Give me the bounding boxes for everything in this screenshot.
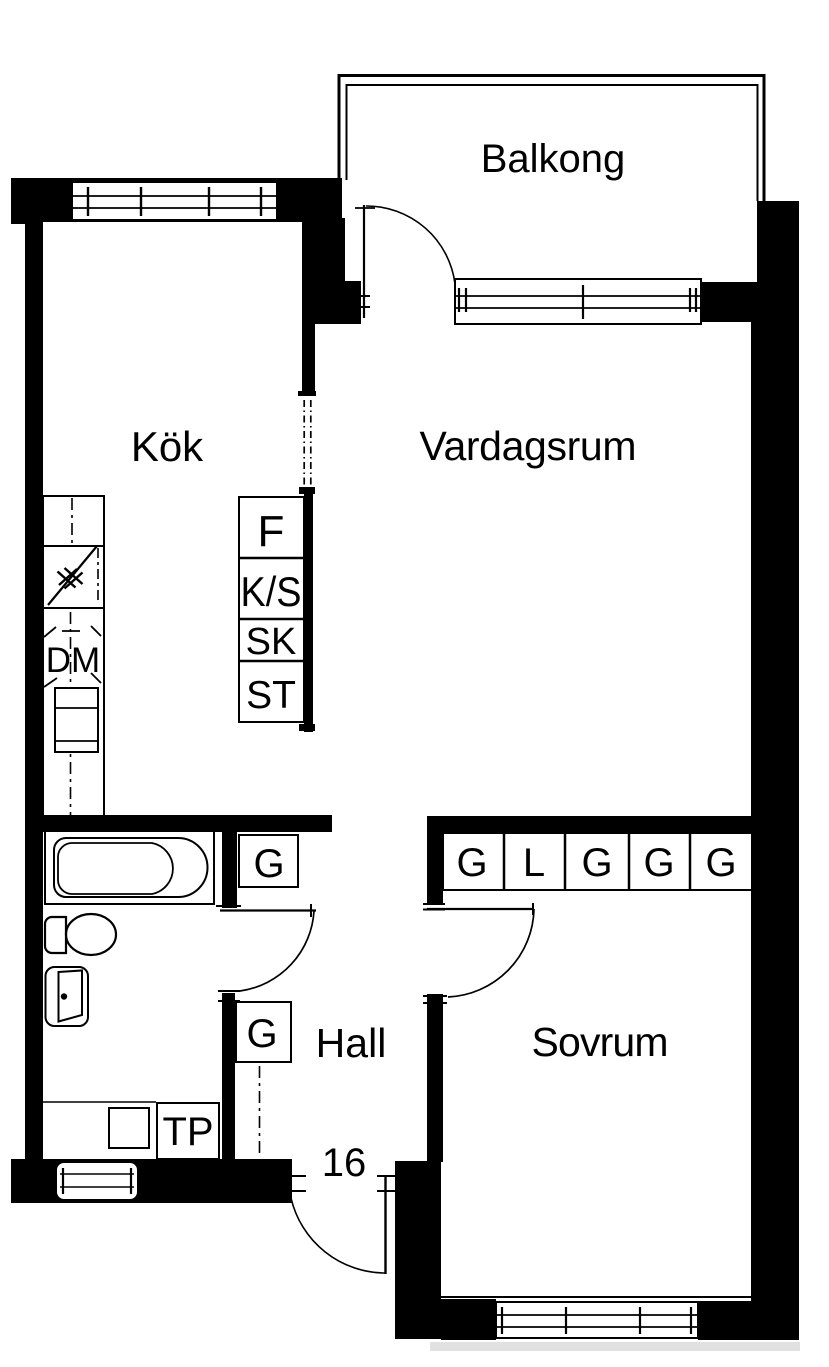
svg-text:L: L xyxy=(523,841,545,885)
svg-text:TP: TP xyxy=(162,1110,213,1154)
svg-text:Vardagsrum: Vardagsrum xyxy=(420,423,637,469)
svg-text:G: G xyxy=(581,841,612,885)
svg-text:DM: DM xyxy=(46,641,100,680)
svg-text:G: G xyxy=(705,841,736,885)
svg-text:G: G xyxy=(253,842,284,886)
svg-text:G: G xyxy=(456,841,487,885)
svg-text:Kök: Kök xyxy=(131,423,204,470)
svg-text:Sovrum: Sovrum xyxy=(532,1019,669,1065)
svg-text:K/S: K/S xyxy=(241,568,302,615)
svg-text:16: 16 xyxy=(322,1141,367,1185)
svg-text:F: F xyxy=(258,507,285,556)
svg-text:SK: SK xyxy=(246,621,297,663)
svg-text:Hall: Hall xyxy=(316,1020,387,1066)
svg-text:G: G xyxy=(246,1012,277,1056)
svg-text:ST: ST xyxy=(246,674,296,717)
svg-text:G: G xyxy=(643,841,674,885)
svg-text:Balkong: Balkong xyxy=(481,137,626,181)
